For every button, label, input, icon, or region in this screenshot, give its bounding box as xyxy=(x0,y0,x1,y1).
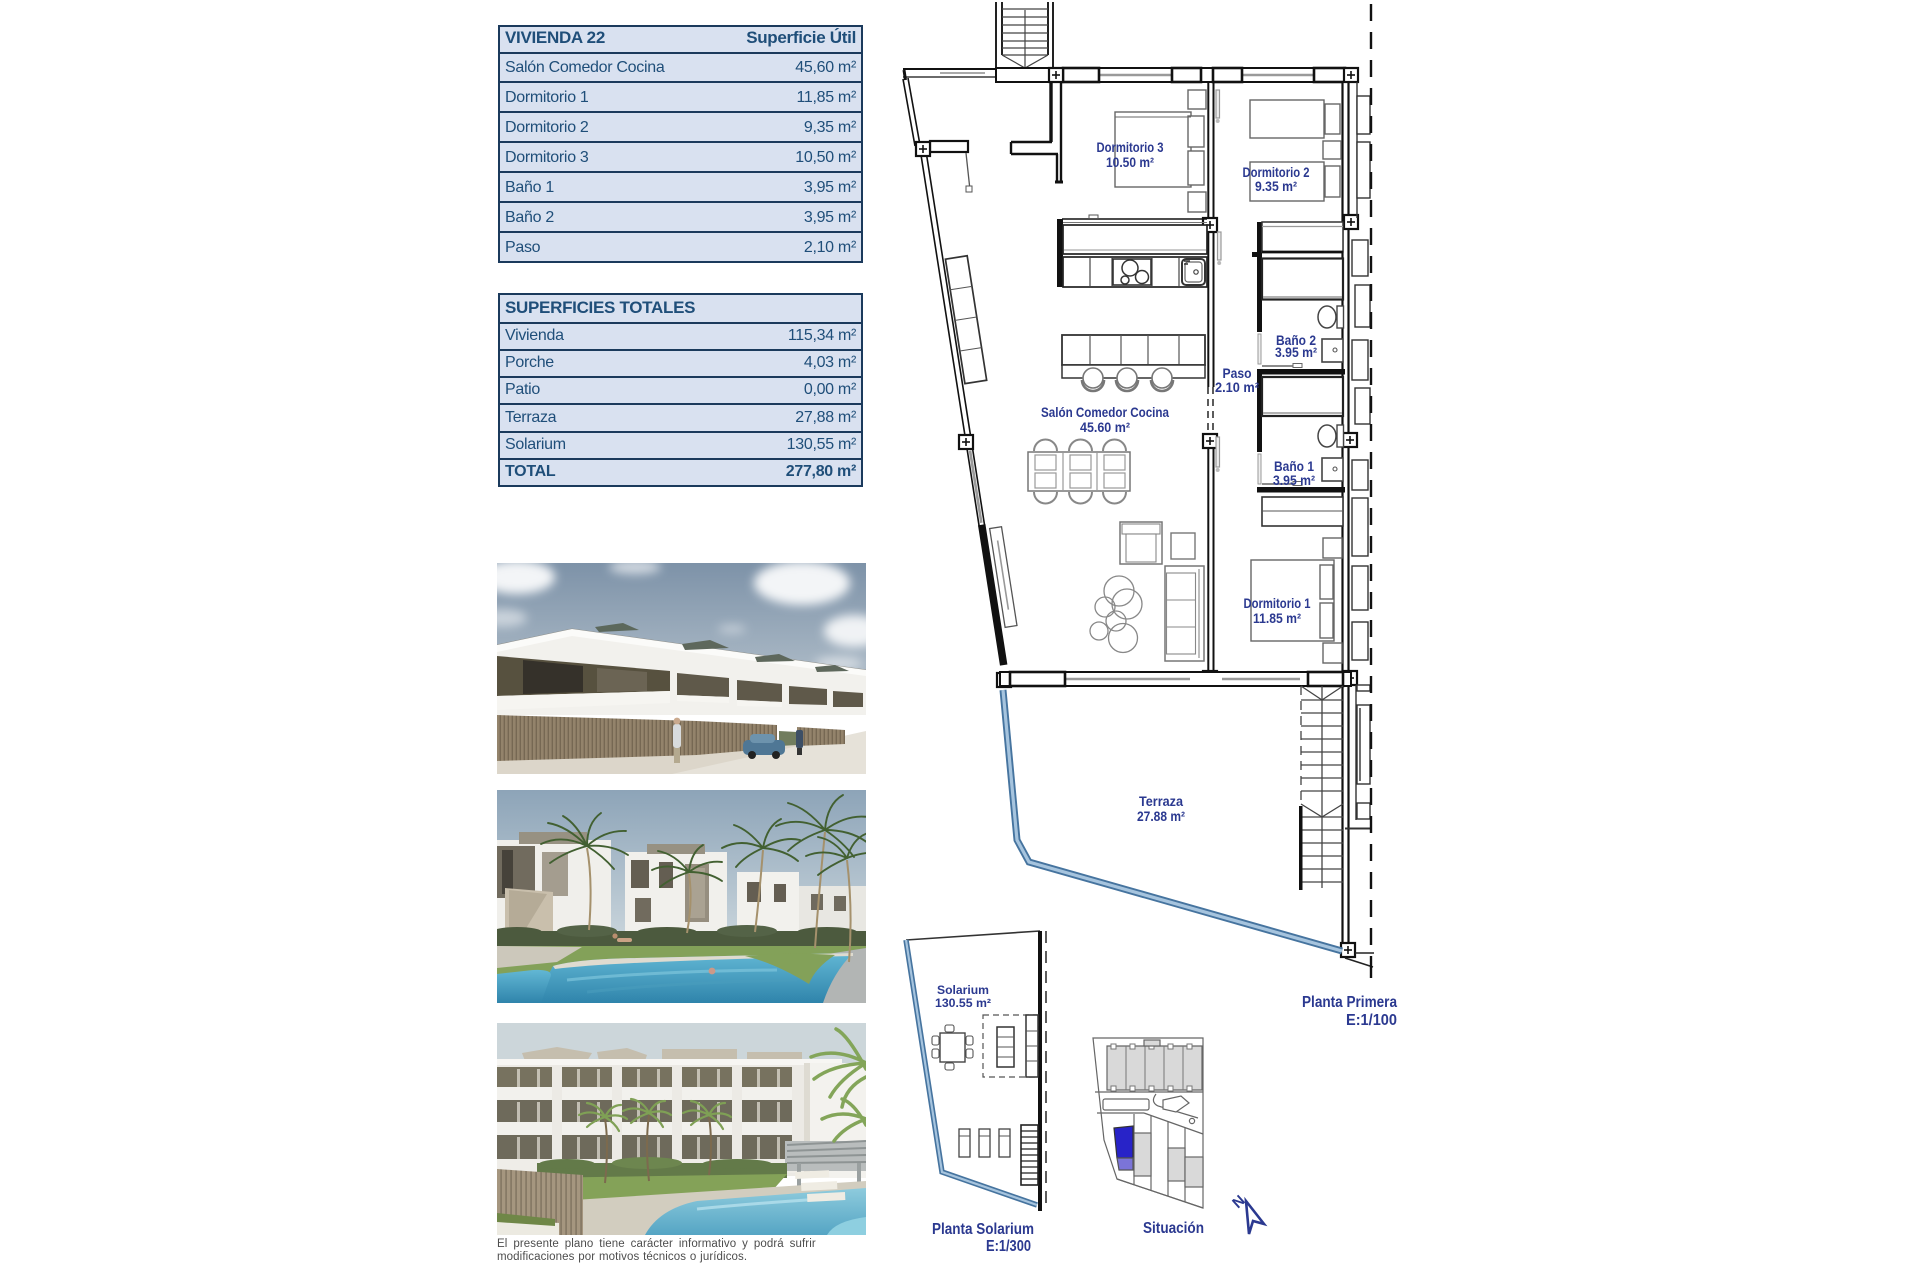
svg-text:2.10 m²: 2.10 m² xyxy=(1215,379,1259,395)
svg-text:130.55 m²: 130.55 m² xyxy=(935,996,991,1010)
svg-text:Situación: Situación xyxy=(1143,1220,1204,1237)
svg-text:3.95 m²: 3.95 m² xyxy=(1273,472,1315,488)
svg-text:Planta Solarium: Planta Solarium xyxy=(932,1221,1034,1238)
svg-text:3.95 m²: 3.95 m² xyxy=(1275,344,1317,360)
svg-text:9.35 m²: 9.35 m² xyxy=(1255,178,1297,194)
svg-text:Dormitorio 3: Dormitorio 3 xyxy=(1097,139,1164,155)
svg-text:10.50 m²: 10.50 m² xyxy=(1106,154,1154,170)
svg-text:Solarium: Solarium xyxy=(937,983,989,997)
svg-text:Planta Primera: Planta Primera xyxy=(1302,994,1397,1011)
svg-text:E:1/100: E:1/100 xyxy=(1346,1012,1397,1029)
svg-text:27.88 m²: 27.88 m² xyxy=(1137,808,1185,824)
svg-text:E:1/300: E:1/300 xyxy=(986,1238,1031,1255)
svg-text:45.60 m²: 45.60 m² xyxy=(1080,419,1130,435)
svg-text:11.85 m²: 11.85 m² xyxy=(1253,610,1301,626)
svg-text:Dormitorio 1: Dormitorio 1 xyxy=(1244,595,1311,611)
svg-text:Terraza: Terraza xyxy=(1139,793,1183,809)
svg-text:Salón Comedor Cocina: Salón Comedor Cocina xyxy=(1041,404,1169,420)
